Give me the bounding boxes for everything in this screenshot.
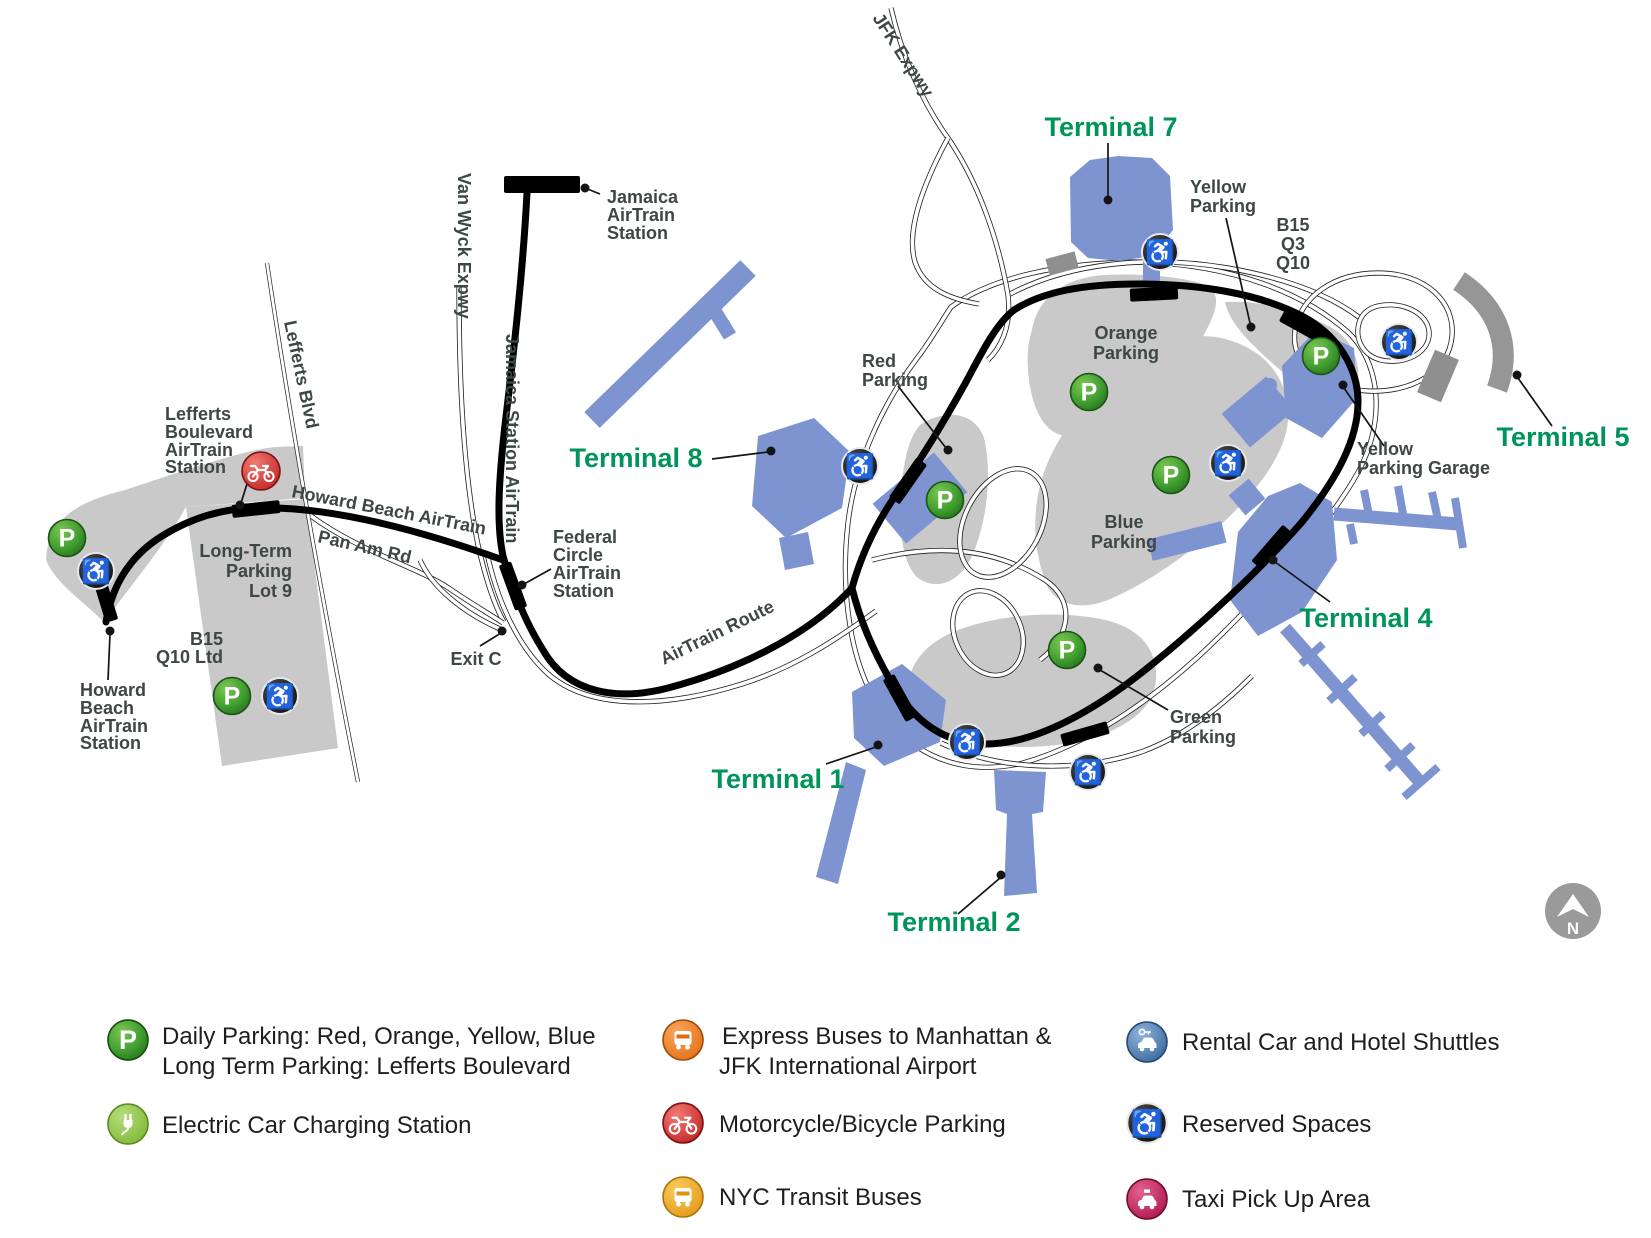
terminal-2-label: Terminal 2	[887, 907, 1020, 937]
svg-text:Green: Green	[1170, 707, 1222, 727]
green-parking-label: Green Parking	[1170, 707, 1236, 747]
svg-text:B15: B15	[190, 629, 223, 649]
svg-text:Orange: Orange	[1094, 323, 1157, 343]
svg-text:NYC Transit Buses: NYC Transit Buses	[719, 1184, 922, 1211]
svg-text:Parking: Parking	[1170, 727, 1236, 747]
jamaica-station-label: Jamaica AirTrain Station	[607, 187, 679, 243]
svg-text:Federal: Federal	[553, 527, 617, 547]
terminal-7-label: Terminal 7	[1044, 112, 1177, 142]
svg-text:Station: Station	[553, 581, 614, 601]
taxi-icon	[1127, 1179, 1167, 1219]
express-bus-icon	[663, 1020, 703, 1060]
svg-text:Express Buses to Manhattan &: Express Buses to Manhattan &	[722, 1023, 1052, 1050]
svg-text:Long Term Parking: Lefferts Bo: Long Term Parking: Lefferts Boulevard	[162, 1053, 571, 1080]
jamaica-line-label: Jamaica Station AirTrain	[502, 334, 522, 543]
svg-text:Yellow: Yellow	[1190, 177, 1247, 197]
svg-text:Parking: Parking	[226, 561, 292, 581]
svg-text:Q10: Q10	[1276, 253, 1310, 273]
legend-motorcycle: Motorcycle/Bicycle Parking	[663, 1103, 1006, 1143]
svg-text:Beach: Beach	[80, 698, 134, 718]
yellow-parking-label: Yellow Parking	[1190, 177, 1256, 216]
terminal-7-station-marker	[1130, 286, 1179, 301]
orange-parking-label: Orange Parking	[1093, 323, 1159, 363]
svg-text:AirTrain: AirTrain	[553, 563, 621, 583]
jfk-airport-map: P ♿	[0, 0, 1651, 1238]
svg-text:Rental Car and Hotel Shuttles: Rental Car and Hotel Shuttles	[1182, 1029, 1500, 1056]
svg-text:Yellow: Yellow	[1357, 439, 1414, 459]
svg-text:Parking Garage: Parking Garage	[1357, 458, 1490, 478]
pan-am-rd-label: Pan Am Rd	[316, 526, 413, 567]
legend-express-buses: Express Buses to Manhattan & JFK Interna…	[663, 1020, 1052, 1080]
terminal-1-label: Terminal 1	[711, 764, 844, 794]
svg-text:Red: Red	[862, 351, 896, 371]
howard-beach-station-label: Howard Beach AirTrain Station	[80, 680, 148, 753]
van-wyck-label: Van Wyck Expwy	[454, 173, 474, 319]
svg-text:Motorcycle/Bicycle Parking: Motorcycle/Bicycle Parking	[719, 1111, 1006, 1138]
north-arrow: N	[1545, 883, 1601, 939]
svg-text:Blue: Blue	[1104, 512, 1143, 532]
b15-q10-label: B15 Q10 Ltd	[156, 629, 223, 667]
terminal-4-label: Terminal 4	[1299, 603, 1432, 633]
terminal-5-arc	[1459, 281, 1503, 389]
legend-taxi: Taxi Pick Up Area	[1127, 1179, 1371, 1219]
svg-text:Parking: Parking	[1093, 343, 1159, 363]
svg-text:N: N	[1567, 919, 1579, 938]
svg-text:Electric Car Charging Station: Electric Car Charging Station	[162, 1112, 471, 1139]
terminal-5-label: Terminal 5	[1496, 422, 1629, 452]
svg-text:Parking: Parking	[1091, 532, 1157, 552]
jfk-expwy-label: JFK Expwy	[869, 9, 938, 100]
svg-text:AirTrain: AirTrain	[607, 205, 675, 225]
b15-q3-q10-label: B15 Q3 Q10	[1276, 215, 1310, 273]
svg-text:Parking: Parking	[1190, 196, 1256, 216]
nyc-bus-icon	[663, 1177, 703, 1217]
svg-text:Daily Parking: Red, Orange, Ye: Daily Parking: Red, Orange, Yellow, Blue	[162, 1023, 596, 1050]
svg-text:Reserved Spaces: Reserved Spaces	[1182, 1111, 1371, 1138]
rental-shuttle-icon	[1127, 1022, 1167, 1062]
svg-text:Parking: Parking	[862, 370, 928, 390]
svg-text:Station: Station	[80, 733, 141, 753]
svg-text:Howard: Howard	[80, 680, 146, 700]
yellow-parking-garage-label: Yellow Parking Garage	[1357, 439, 1490, 478]
federal-circle-station-label: Federal Circle AirTrain Station	[553, 527, 621, 601]
svg-text:Station: Station	[165, 457, 226, 477]
svg-text:Q3: Q3	[1281, 234, 1305, 254]
exit-c-label: Exit C	[450, 649, 501, 669]
terminal-8-building	[592, 268, 967, 570]
svg-text:Lot 9: Lot 9	[249, 581, 292, 601]
svg-text:JFK International Airport: JFK International Airport	[719, 1053, 977, 1080]
ev-charging-icon	[108, 1104, 148, 1144]
svg-text:Jamaica: Jamaica	[607, 187, 679, 207]
svg-text:Long-Term: Long-Term	[199, 541, 292, 561]
svg-text:Station: Station	[607, 223, 668, 243]
svg-text:Boulevard: Boulevard	[165, 422, 253, 442]
svg-text:Lefferts: Lefferts	[165, 404, 231, 424]
svg-text:Q10 Ltd: Q10 Ltd	[156, 647, 223, 667]
svg-text:B15: B15	[1276, 215, 1309, 235]
legend: Daily Parking: Red, Orange, Yellow, Blue…	[108, 1020, 1500, 1219]
legend-nyc-buses: NYC Transit Buses	[663, 1177, 922, 1217]
legend-rental-shuttles: Rental Car and Hotel Shuttles	[1127, 1022, 1500, 1062]
svg-text:Circle: Circle	[553, 545, 603, 565]
svg-text:Taxi Pick Up Area: Taxi Pick Up Area	[1182, 1186, 1371, 1213]
legend-reserved-spaces: Reserved Spaces	[1127, 1103, 1371, 1143]
terminal-8-label: Terminal 8	[569, 443, 702, 473]
legend-ev-charging: Electric Car Charging Station	[108, 1104, 471, 1144]
legend-daily-parking: Daily Parking: Red, Orange, Yellow, Blue…	[108, 1020, 596, 1080]
jamaica-station-bar	[504, 176, 580, 193]
